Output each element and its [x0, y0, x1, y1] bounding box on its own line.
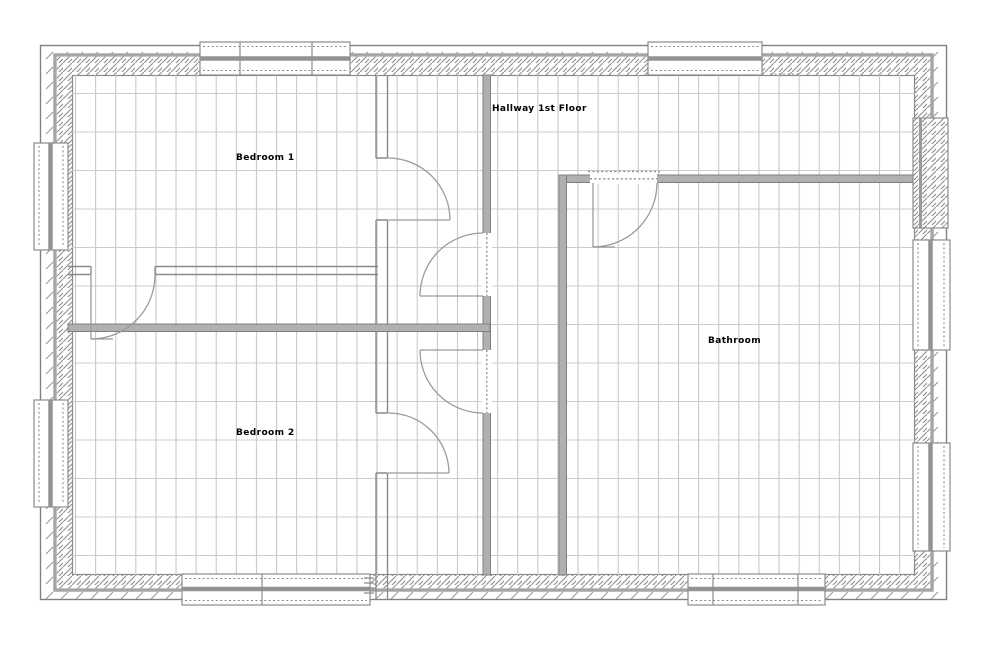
window-bottom-left — [182, 574, 370, 605]
window-right-upper — [913, 240, 950, 350]
window-bottom-right — [688, 574, 825, 605]
floor-plan-page: Bedroom 1 Bedroom 2 Hallway 1st Floor Ba… — [0, 0, 998, 646]
window-right-lower — [913, 443, 950, 551]
room-label-bedroom1: Bedroom 1 — [236, 153, 295, 163]
window-left-lower — [34, 400, 68, 507]
wall-panel-right — [913, 118, 948, 228]
room-label-bathroom: Bathroom — [708, 336, 761, 346]
room-label-bedroom2: Bedroom 2 — [236, 428, 295, 438]
room-label-hallway: Hallway 1st Floor — [492, 104, 587, 114]
window-top-left — [200, 42, 350, 75]
window-left-upper — [34, 143, 68, 250]
floor-plan-canvas — [0, 0, 998, 646]
